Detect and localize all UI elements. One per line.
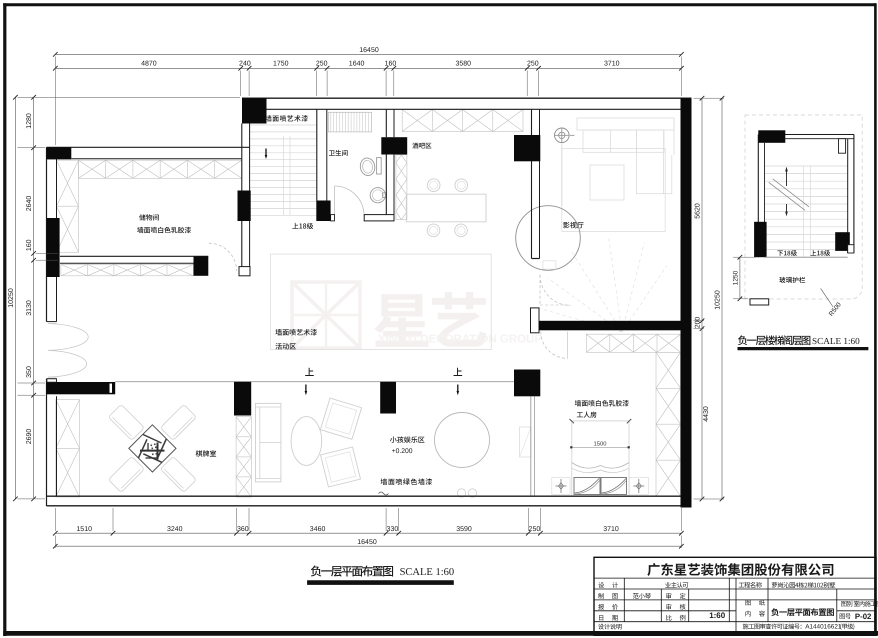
svg-text:250: 250 <box>529 526 541 533</box>
svg-text:16450: 16450 <box>357 539 377 546</box>
svg-text:1510: 1510 <box>76 526 92 533</box>
svg-text:200: 200 <box>695 317 702 329</box>
svg-text:250: 250 <box>527 61 539 68</box>
svg-text:1280: 1280 <box>26 113 33 129</box>
svg-text:SCALE 1:60: SCALE 1:60 <box>812 336 860 346</box>
svg-text:2690: 2690 <box>26 429 33 445</box>
svg-text:5620: 5620 <box>695 203 702 219</box>
svg-text:16450: 16450 <box>359 47 379 54</box>
svg-text:10250: 10250 <box>715 290 722 310</box>
svg-text:3580: 3580 <box>456 61 472 68</box>
svg-text:250: 250 <box>316 61 328 68</box>
svg-text:160: 160 <box>385 61 397 68</box>
svg-text:3710: 3710 <box>603 526 619 533</box>
svg-text:2640: 2640 <box>26 196 33 212</box>
svg-text:3590: 3590 <box>456 526 472 533</box>
svg-text:1640: 1640 <box>349 61 365 68</box>
svg-text:10250: 10250 <box>8 288 15 308</box>
svg-text:1750: 1750 <box>273 61 289 68</box>
svg-text:3710: 3710 <box>604 61 620 68</box>
svg-text:XINGYI DECORATION GROUP: XINGYI DECORATION GROUP <box>378 334 542 346</box>
svg-text:1500: 1500 <box>594 440 607 447</box>
svg-text:4430: 4430 <box>703 406 710 422</box>
svg-text:P-02: P-02 <box>855 612 872 621</box>
svg-text:3240: 3240 <box>167 526 183 533</box>
svg-text:160: 160 <box>26 239 33 251</box>
svg-text:A144016621: A144016621 <box>805 624 842 631</box>
svg-text:360: 360 <box>237 526 249 533</box>
svg-text:3130: 3130 <box>26 300 33 316</box>
svg-text:330: 330 <box>387 526 399 533</box>
svg-text:SCALE 1:60: SCALE 1:60 <box>400 567 455 578</box>
svg-text:1:60: 1:60 <box>709 611 726 620</box>
svg-text:350: 350 <box>26 366 33 378</box>
svg-text:240: 240 <box>239 61 251 68</box>
svg-text:3460: 3460 <box>310 526 326 533</box>
svg-text:1250: 1250 <box>732 270 739 285</box>
svg-text:4870: 4870 <box>141 61 157 68</box>
svg-text:+0.200: +0.200 <box>392 448 413 455</box>
